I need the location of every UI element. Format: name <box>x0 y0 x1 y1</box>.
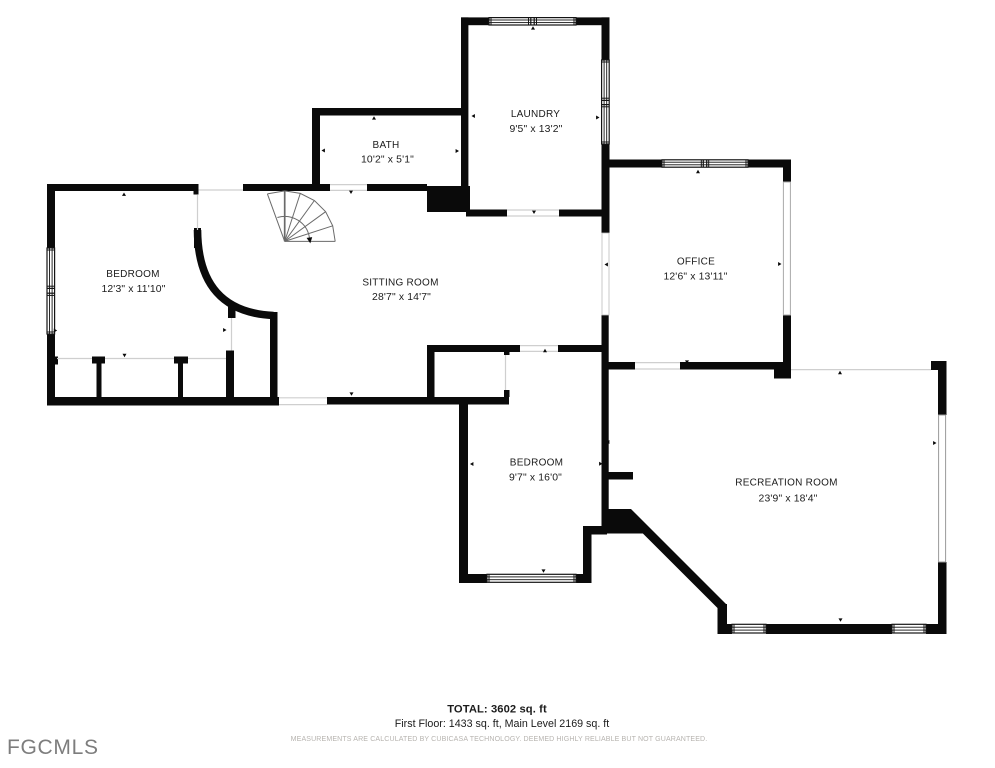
svg-text:FGCMLS: FGCMLS <box>7 736 99 759</box>
svg-text:BEDROOM: BEDROOM <box>510 458 563 469</box>
svg-text:10'2" x 5'1": 10'2" x 5'1" <box>361 155 414 166</box>
svg-text:SITTING ROOM: SITTING ROOM <box>362 278 438 289</box>
svg-text:28'7" x 14'7": 28'7" x 14'7" <box>372 292 431 303</box>
svg-text:OFFICE: OFFICE <box>677 257 715 268</box>
svg-text:BEDROOM: BEDROOM <box>106 269 159 280</box>
svg-text:9'5" x 13'2": 9'5" x 13'2" <box>509 124 562 135</box>
svg-text:9'7" x 16'0": 9'7" x 16'0" <box>509 473 562 484</box>
svg-text:RECREATION ROOM: RECREATION ROOM <box>735 478 837 489</box>
svg-text:12'6" x 13'11": 12'6" x 13'11" <box>663 272 727 283</box>
svg-text:First Floor: 1433 sq. ft, Main: First Floor: 1433 sq. ft, Main Level 216… <box>395 718 609 730</box>
svg-text:LAUNDRY: LAUNDRY <box>511 109 560 120</box>
svg-text:BATH: BATH <box>373 140 400 151</box>
svg-text:23'9" x 18'4": 23'9" x 18'4" <box>759 494 818 505</box>
svg-text:MEASUREMENTS ARE CALCULATED BY: MEASUREMENTS ARE CALCULATED BY CUBICASA … <box>291 736 708 743</box>
svg-text:12'3" x 11'10": 12'3" x 11'10" <box>101 284 165 295</box>
svg-text:TOTAL: 3602 sq. ft: TOTAL: 3602 sq. ft <box>447 704 547 716</box>
